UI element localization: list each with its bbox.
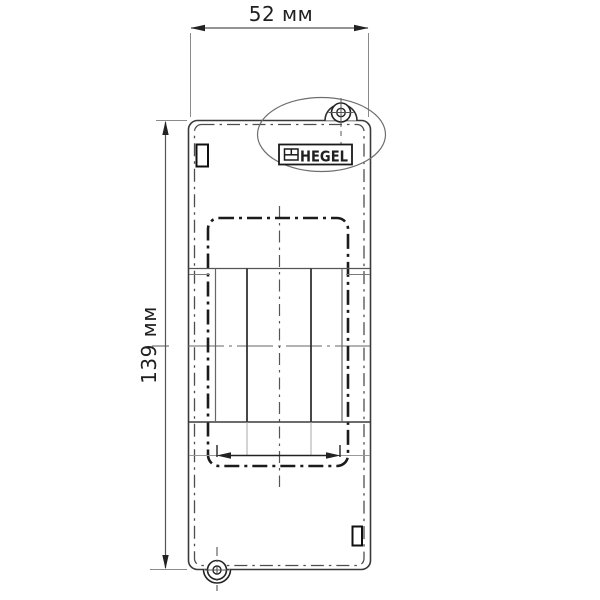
drawing-canvas: 52 мм 139 мм [0, 0, 600, 600]
height-dimension: 139 мм [137, 121, 187, 570]
arrowhead-left-icon [191, 25, 206, 31]
height-dimension-label: 139 мм [137, 306, 161, 384]
brand-label: HEGEL [300, 148, 348, 166]
technical-drawing: 52 мм 139 мм [0, 0, 600, 600]
latch-right [353, 527, 363, 546]
arrowhead-up-icon [162, 121, 168, 135]
latch-left [197, 145, 209, 167]
arrowhead-right-icon [354, 25, 369, 31]
arrowhead-down-icon [162, 555, 168, 569]
width-dimension-label: 52 мм [249, 2, 313, 26]
